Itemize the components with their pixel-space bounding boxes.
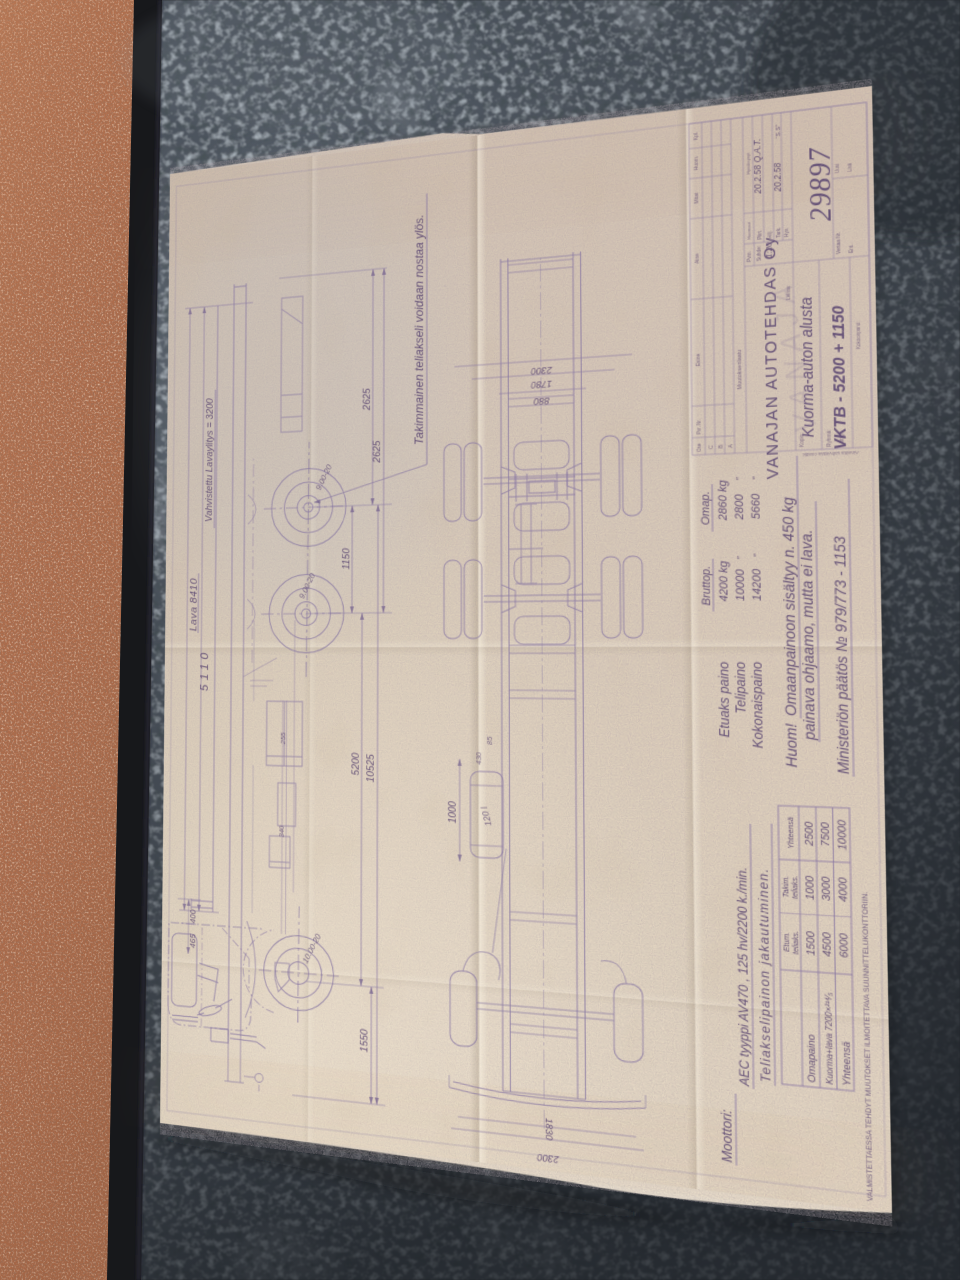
svg-text:Aine: Aine [694, 253, 700, 264]
svg-text:Lisä: Lisä [846, 162, 853, 172]
svg-text:Moottori:: Moottori: [720, 1109, 736, 1163]
svg-text:85: 85 [486, 736, 494, 745]
svg-text:2500: 2500 [802, 821, 816, 847]
svg-text:5110: 5110 [199, 649, 211, 691]
svg-text:5200: 5200 [350, 753, 361, 776]
svg-text:Takim.: Takim. [783, 876, 791, 898]
svg-text:2625: 2625 [361, 387, 372, 412]
svg-text:Telipaino: Telipaino [733, 662, 749, 714]
svg-text:Kpl.: Kpl. [693, 131, 699, 140]
svg-text:1780: 1780 [530, 378, 552, 390]
svg-text:2300: 2300 [530, 364, 553, 376]
svg-text:Vahvistettu Lavaylitys = 3200: Vahvistettu Lavaylitys = 3200 [204, 398, 215, 522]
svg-text:Mitat: Mitat [693, 192, 699, 204]
svg-text:1150: 1150 [341, 548, 352, 570]
svg-text:Teliakselipainon jakautuminen.: Teliakselipainon jakautuminen. [757, 867, 774, 1083]
svg-text:VKTB - 5200 + 1150: VKTB - 5200 + 1150 [828, 304, 850, 450]
svg-text:3000: 3000 [819, 876, 833, 901]
svg-text:Omap.: Omap. [699, 491, 713, 525]
svg-text:Pvr. Nr.: Pvr. Nr. [696, 419, 702, 434]
svg-text:″: ″ [753, 476, 762, 480]
svg-text:340: 340 [279, 825, 286, 838]
svg-text:1500: 1500 [804, 931, 818, 956]
svg-text:teliaks.: teliaks. [792, 875, 800, 899]
svg-text:C: C [708, 444, 716, 449]
svg-text:1000: 1000 [803, 875, 817, 900]
svg-text:4200 kg: 4200 kg [717, 560, 731, 602]
svg-text:2860 kg: 2860 kg [716, 479, 730, 522]
svg-text:Takimmainen teliakseli voidaan: Takimmainen teliakseli voidaan nostaa yl… [413, 214, 426, 445]
svg-text:2625: 2625 [371, 439, 382, 464]
svg-text:1000: 1000 [447, 801, 458, 824]
svg-text:Esine: Esine [695, 353, 701, 367]
svg-text:B: B [717, 445, 725, 449]
svg-text:10525: 10525 [365, 753, 376, 783]
svg-text:7500: 7500 [818, 822, 832, 847]
svg-text:Uusi: Uusi [834, 163, 841, 173]
svg-text:465: 465 [188, 933, 197, 948]
svg-text:Huom!: Huom! [782, 722, 801, 767]
svg-text:20.2.58 Q.A.T.: 20.2.58 Q.A.T. [752, 138, 764, 196]
svg-text:1550: 1550 [359, 1029, 370, 1053]
svg-text:6000: 6000 [837, 933, 851, 958]
svg-text:Huomaut: Huomaut [747, 222, 752, 240]
svg-text:painava ohjaamo, mutta ei lava: painava ohjaamo, mutta ei lava. [797, 529, 819, 741]
svg-text:Yhteensä: Yhteensä [788, 816, 796, 849]
svg-text:″: ″ [754, 553, 763, 557]
svg-text:10000: 10000 [835, 819, 849, 850]
svg-text:2800: 2800 [733, 493, 747, 521]
svg-text:″: ″ [737, 556, 746, 560]
svg-text:255: 255 [280, 732, 287, 746]
svg-text:Etum.: Etum. [784, 932, 792, 952]
svg-text:Hyväksynyt: Hyväksynyt [746, 152, 751, 174]
svg-text:14200: 14200 [750, 568, 765, 601]
svg-text:20.2.58: 20.2.58 [772, 161, 784, 193]
svg-text:Yhteensä: Yhteensä [840, 1040, 853, 1086]
svg-text:Kokoonpano:: Kokoonpano: [855, 321, 862, 349]
svg-text:Muutoksenlaatu: Muutoksenlaatu [736, 349, 744, 390]
svg-text:Hyv.: Hyv. [783, 227, 790, 237]
svg-text:Kokonaispaino: Kokonaispaino [750, 662, 767, 749]
svg-text:4000: 4000 [836, 877, 850, 902]
svg-text:400: 400 [188, 908, 197, 923]
svg-text:Pvm.: Pvm. [746, 251, 752, 263]
svg-text:430: 430 [475, 752, 483, 765]
svg-text:10000: 10000 [734, 568, 748, 601]
svg-text:1830: 1830 [543, 1117, 554, 1141]
svg-text:AEC tyyppi AV470 , 125 hv/22: AEC tyyppi AV470 , 125 hv/2200 k./min. [736, 867, 753, 1088]
svg-text:Vertaa Nr.: Vertaa Nr. [835, 232, 842, 255]
svg-text:4500: 4500 [820, 932, 834, 957]
svg-text:Etuaks paino: Etuaks paino [717, 662, 733, 738]
svg-text:Ent.: Ent. [848, 244, 855, 254]
svg-text:Kuorma+lava 7200×²¹⁴⁄₅: Kuorma+lava 7200×²¹⁴⁄₅ [825, 992, 836, 1085]
svg-text:5660: 5660 [749, 493, 763, 520]
svg-text:Huom.: Huom. [693, 155, 699, 170]
svg-text:″: ″ [736, 477, 745, 481]
svg-text:Ose: Ose [696, 443, 702, 452]
svg-text:Liittyy:: Liittyy: [838, 432, 845, 447]
svg-text:880: 880 [533, 395, 549, 406]
svg-text:A: A [727, 443, 735, 448]
svg-text:29897: 29897 [804, 144, 839, 223]
svg-text:Omapaino: Omapaino [805, 1033, 818, 1083]
svg-text:Bruttop.: Bruttop. [700, 566, 714, 606]
svg-text:teliaks.: teliaks. [793, 930, 801, 954]
svg-text:“S.S”: “S.S” [775, 124, 783, 139]
